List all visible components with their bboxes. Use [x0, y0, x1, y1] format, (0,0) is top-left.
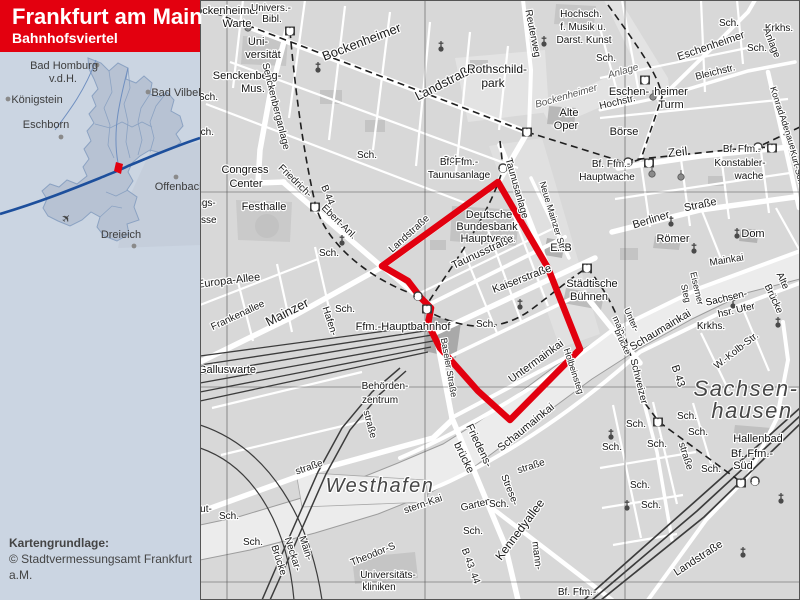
svg-text:U: U — [584, 264, 589, 273]
town-label: Bad Homburg — [30, 60, 98, 72]
map-label: Center — [229, 178, 262, 190]
svg-text:U: U — [655, 418, 660, 427]
map-label: ut- — [200, 504, 212, 515]
map-label: zentrum — [362, 395, 398, 406]
map-label: Sch. — [688, 427, 708, 438]
map-title-banner: Frankfurt am Main Bahnhofsviertel — [0, 0, 200, 52]
svg-text:U: U — [738, 479, 743, 488]
ubahn-icon: U — [522, 128, 532, 138]
svg-text:U: U — [424, 305, 429, 314]
svg-text:U: U — [312, 203, 317, 212]
ubahn-icon: U — [582, 264, 592, 274]
map-label: Behörden- — [362, 381, 409, 392]
map-label: Sch. — [630, 480, 650, 491]
sbahn-icon: S — [750, 476, 760, 486]
map-label: kliniken — [362, 582, 395, 593]
map-label: Sch. — [677, 411, 697, 422]
map-label: Städtische — [566, 278, 617, 290]
page-subtitle: Bahnhofsviertel — [12, 30, 200, 47]
map-label: Zeil — [667, 144, 688, 160]
map-label: Rothschild- — [467, 62, 527, 76]
map-label: Sch. — [626, 419, 646, 430]
sidebar: Bad Homburgv.d.H.KönigsteinEschbornBad V… — [0, 0, 200, 600]
svg-text:U: U — [524, 128, 529, 137]
region-overview-map: Bad Homburgv.d.H.KönigsteinEschbornBad V… — [0, 0, 200, 600]
map-label: Warte — [223, 18, 252, 30]
map-label: Uni- — [248, 36, 269, 48]
map-label: Bf. Ffm.- — [440, 157, 478, 168]
attribution: Kartengrundlage: © Stadtvermessungsamt F… — [9, 535, 200, 583]
map-label: Bf. Ffm.- — [723, 144, 761, 155]
map-label: Konstabler- — [714, 158, 765, 169]
attribution-source: © Stadtvermessungsamt Frankfurt a.M. — [9, 551, 200, 583]
map-label: Alte — [560, 107, 579, 119]
map-label: Sch. — [357, 150, 377, 161]
svg-text:U: U — [642, 76, 647, 85]
map-label: Festhalle — [242, 201, 287, 213]
map-label: Sch. — [219, 511, 239, 522]
ubahn-icon: U — [310, 203, 320, 213]
map-label: park — [481, 76, 505, 90]
map-label: Ffm.-Hauptbahnhof — [356, 321, 452, 333]
city-map-panel: UUUUUUUUUUSSSSS BockenheimerWarteUnivers… — [200, 0, 800, 600]
svg-text:U: U — [646, 159, 651, 168]
map-label: Bundesbank — [456, 221, 518, 233]
ubahn-icon: U — [640, 76, 650, 86]
map-label: Sch. — [489, 499, 509, 510]
map-label: ngs- — [200, 198, 216, 209]
map-label: Sch. — [476, 319, 496, 330]
ubahn-icon: U — [285, 27, 295, 37]
map-label: Univers.- — [251, 3, 291, 14]
map-label: Sch. — [200, 92, 218, 103]
town-label: Bad Vilbel — [151, 87, 200, 99]
map-label: Sch. — [641, 500, 661, 511]
map-label: Taunusanlage — [428, 170, 491, 181]
map-label: Congress — [221, 164, 269, 176]
town-label: Dreieich — [101, 229, 141, 241]
map-label: wache — [734, 171, 764, 182]
ubahn-icon: U — [767, 144, 777, 154]
map-label: f. Musik u. — [560, 22, 606, 33]
map-label: Hochsch. — [560, 9, 602, 20]
map-label: hausen — [711, 398, 792, 423]
svg-text:S: S — [415, 292, 420, 301]
town-label: Königstein — [11, 94, 62, 106]
town-dot — [146, 90, 151, 95]
map-label: Hallenbad — [733, 433, 783, 445]
city-map: UUUUUUUUUUSSSSS BockenheimerWarteUnivers… — [200, 0, 800, 600]
page-title: Frankfurt am Main — [12, 4, 200, 30]
map-label: Bf. Ffm.- — [731, 448, 774, 460]
map-label: Universitäts- — [360, 570, 416, 581]
map-label: Sch. — [719, 18, 739, 29]
town-label: Eschborn — [23, 119, 69, 131]
svg-text:U: U — [769, 144, 774, 153]
map-label: Sch. — [335, 304, 355, 315]
town-label: v.d.H. — [49, 73, 77, 85]
map-label: Dom — [741, 228, 764, 240]
map-label: Hauptwache — [579, 172, 635, 183]
attribution-label: Kartengrundlage: — [9, 535, 200, 551]
map-label: versität — [245, 49, 280, 61]
map-label: Sch. — [701, 464, 721, 475]
town-label: Offenbach — [155, 181, 200, 193]
map-label: Bf. Ffm.- — [558, 587, 596, 598]
map-label: Krkhs. — [697, 321, 725, 332]
map-label: Römer — [656, 233, 689, 245]
map-label: Sch. — [200, 127, 214, 138]
map-label: Turm — [658, 99, 683, 111]
map-label: Galluswarte — [200, 364, 256, 376]
svg-text:S: S — [752, 477, 757, 486]
town-dot — [132, 244, 137, 249]
map-label: Sch. — [243, 537, 263, 548]
map-label: Deutsche — [466, 209, 512, 221]
ubahn-icon: U — [653, 418, 663, 428]
map-label: Bibl. — [262, 14, 281, 25]
map-label: Mus. — [241, 83, 265, 95]
map-label: Bühnen — [570, 291, 608, 303]
map-label: Sch. — [747, 43, 767, 54]
map-label: Sch. — [463, 526, 483, 537]
map-label: Sch. — [319, 248, 339, 259]
town-dot — [6, 97, 11, 102]
map-page: Bad Homburgv.d.H.KönigsteinEschbornBad V… — [0, 0, 800, 600]
map-label: Sch. — [602, 442, 622, 453]
ubahn-icon: U — [736, 479, 746, 489]
map-label: Oper — [554, 120, 579, 132]
map-label: Sch. — [596, 53, 616, 64]
map-label: Darst. Kunst — [556, 35, 611, 46]
ubahn-icon: U — [422, 305, 432, 315]
map-label: esse — [200, 215, 217, 226]
svg-text:U: U — [287, 27, 292, 36]
town-dot — [59, 135, 64, 140]
map-label: Börse — [610, 126, 639, 138]
map-label: Süd — [733, 460, 753, 472]
map-label: Westhafen — [326, 475, 435, 497]
town-dot — [174, 175, 179, 180]
ubahn-icon: U — [644, 159, 654, 169]
sbahn-icon: S — [413, 291, 423, 301]
map-label: heimer — [654, 86, 688, 98]
map-label: Sch. — [647, 439, 667, 450]
map-label: Bf. Ffm.- — [592, 159, 630, 170]
